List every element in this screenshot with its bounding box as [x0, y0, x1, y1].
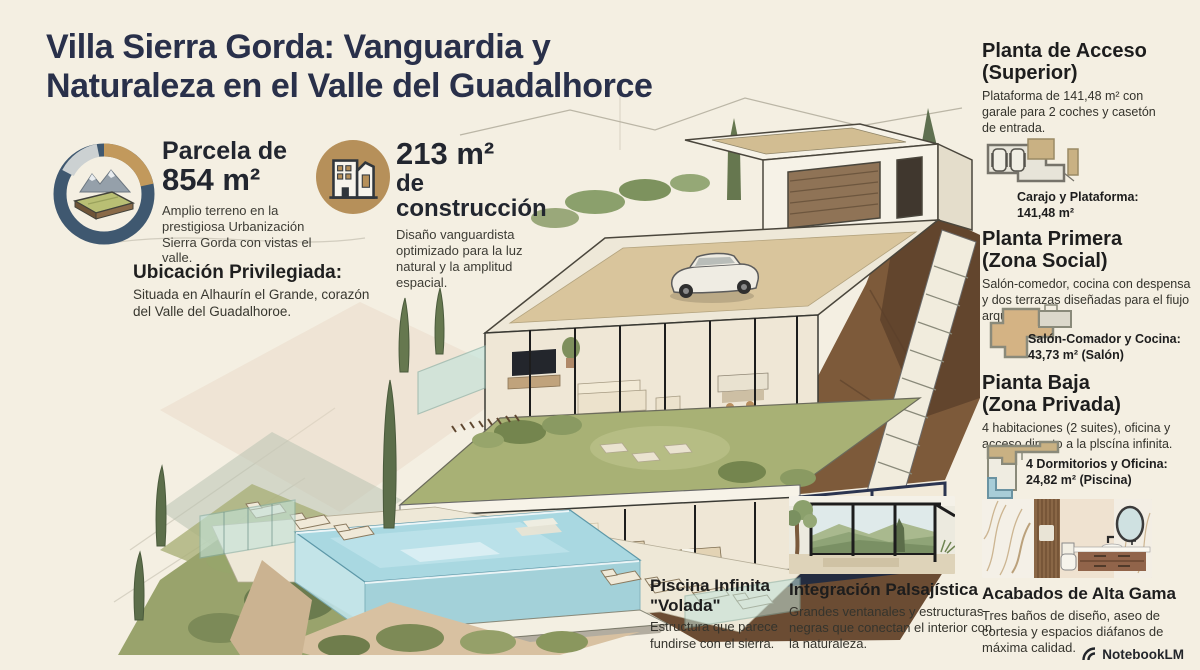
integracion-heading: Integración Palsajística [789, 580, 994, 600]
notebooklm-icon [1082, 647, 1097, 662]
location-desc: Situada en Alhaurín el Grande, corazón d… [133, 287, 388, 321]
acabados-thumbnail [982, 499, 1152, 578]
dormitorios-caption: 4 Dormitorios y Oficina: 24,82 m² (Pisci… [1026, 456, 1200, 488]
stat-construccion: 213 m² de construcción Disaño vanguardis… [396, 138, 571, 290]
salon-caption: Salón-Comador y Cocina: 43,73 m² (Salón) [1028, 331, 1198, 363]
section-planta-acceso: Planta de Acceso (Superior) Plataforma d… [982, 40, 1194, 137]
garage-caption: Carajo y Plataforma: 141,48 m² [1017, 189, 1187, 221]
planta-primera-heading: Planta Primera [982, 228, 1197, 250]
acabados-heading: Acabados de Alta Gama [982, 584, 1192, 604]
planta-primera-heading2: (Zona Social) [982, 250, 1197, 272]
notebooklm-brand: NotebookLM [1082, 647, 1184, 662]
integracion-thumbnail [789, 496, 955, 574]
title-line2: Naturaleza en el Valle del Guadalhorce [46, 67, 726, 106]
location-block: Ubicación Privilegiada: Situada en Alhau… [133, 262, 403, 321]
page-title: Villa Sierra Gorda: Vanguardia y Natural… [46, 28, 726, 107]
location-heading: Ubicación Privilegiada: [133, 262, 403, 284]
parcela-heading: Parcela de [162, 138, 337, 164]
infographic-canvas: Villa Sierra Gorda: Vanguardia y Natural… [0, 0, 1200, 670]
construccion-heading: de construcción [396, 171, 571, 221]
planta-baja-heading: Pianta Baja [982, 372, 1197, 394]
parcel-donut-icon [48, 138, 160, 250]
feature-acabados: Acabados de Alta Gama Tres baños de dise… [982, 584, 1192, 656]
planta-baja-heading2: (Zona Privada) [982, 394, 1197, 416]
construccion-desc: Disaño vanguardista optimizado para la l… [396, 227, 556, 290]
brand-label: NotebookLM [1102, 647, 1184, 662]
integracion-desc: Grandes ventanales y estructuras negras … [789, 604, 994, 652]
planta-acceso-heading: Planta de Acceso [982, 40, 1194, 62]
parcela-desc: Amplio terreno en la prestigiosa Urbaniz… [162, 203, 330, 266]
building-icon [316, 140, 390, 214]
planta-acceso-desc: Plataforma de 141,48 m² con garale para … [982, 89, 1172, 137]
stat-parcela: Parcela de 854 m² Amplio terreno en la p… [162, 138, 337, 266]
garage-floorplan-icon [984, 137, 1084, 187]
title-line1: Villa Sierra Gorda: Vanguardia y [46, 28, 726, 67]
construccion-value: 213 m² [396, 138, 571, 171]
planta-acceso-heading2: (Superior) [982, 62, 1194, 84]
feature-integracion: Integración Palsajística Grandes ventana… [789, 580, 994, 652]
parcela-value: 854 m² [162, 164, 337, 197]
